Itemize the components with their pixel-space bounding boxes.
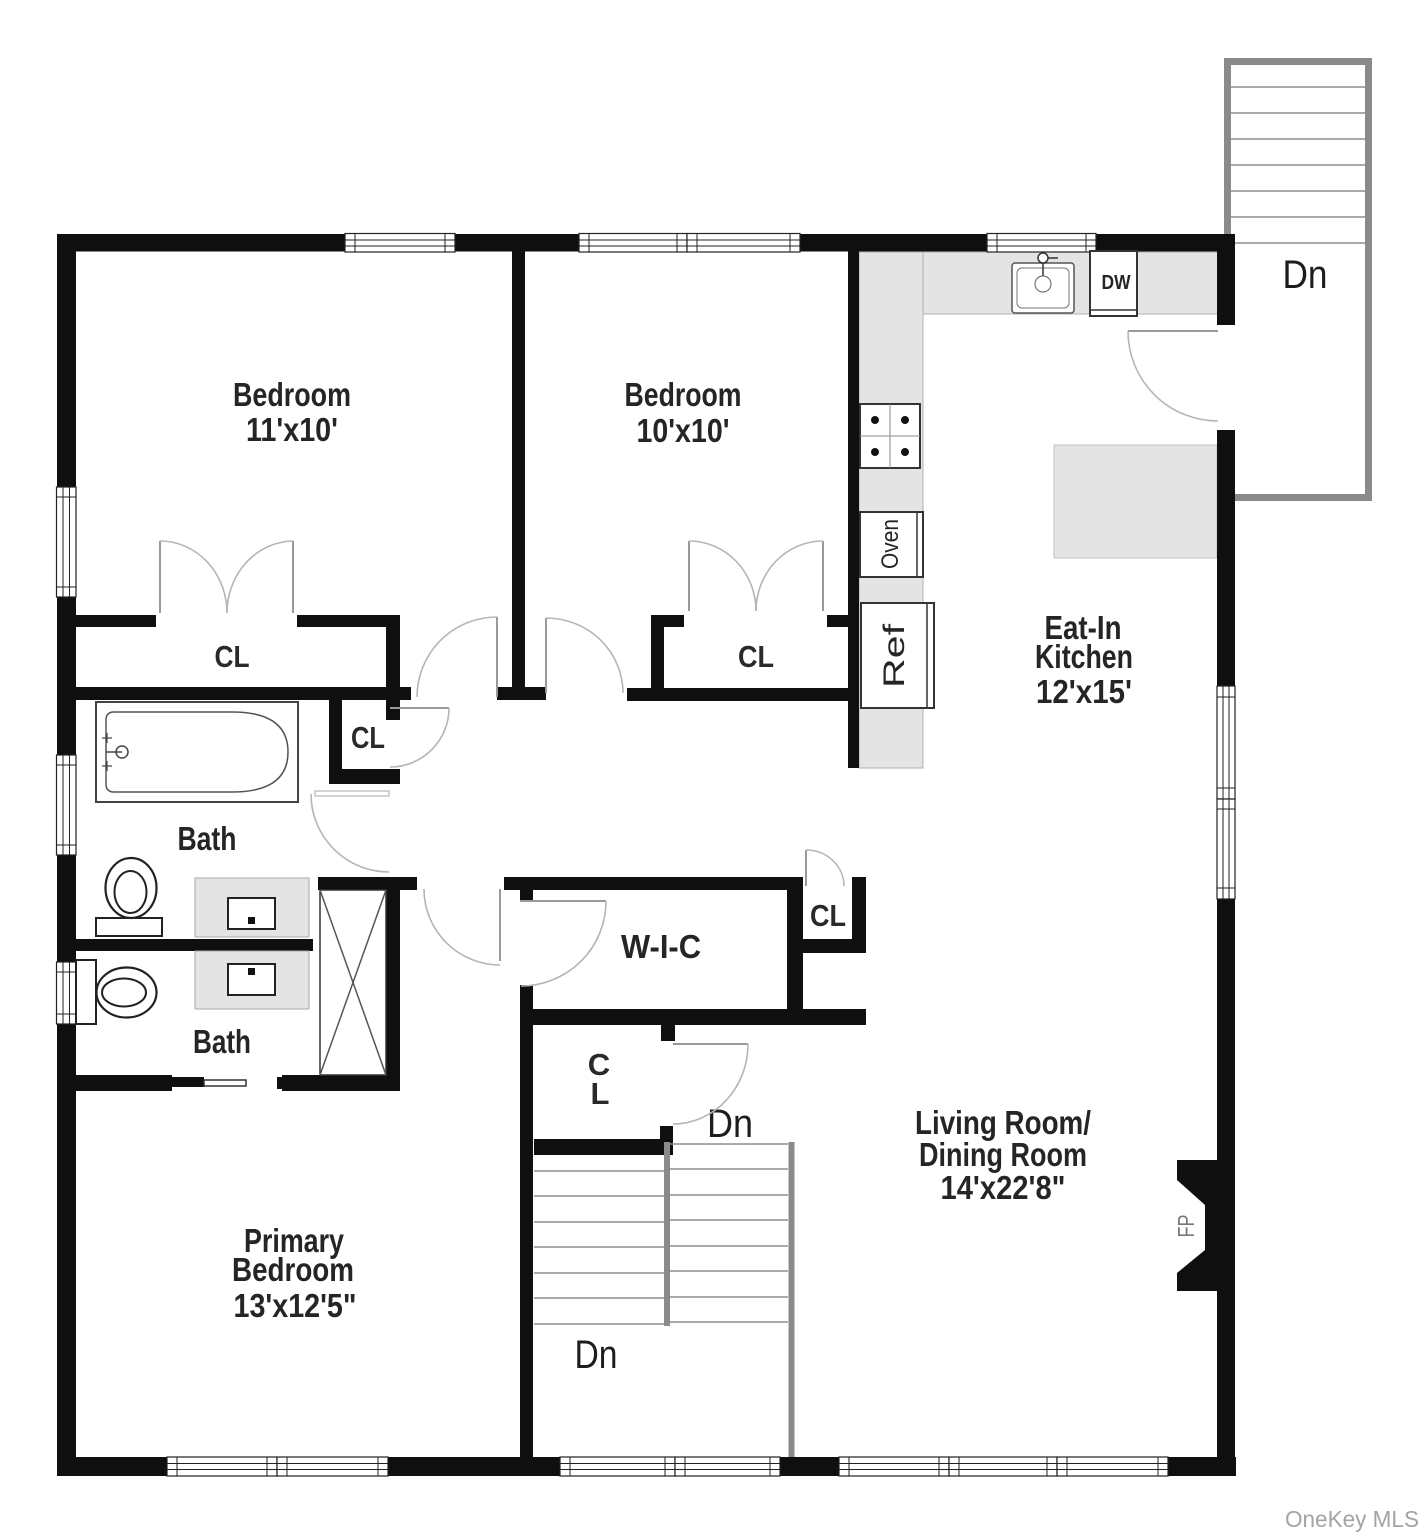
svg-text:CL: CL <box>810 898 846 933</box>
svg-text:13'x12'5": 13'x12'5" <box>234 1287 357 1324</box>
svg-text:Dn: Dn <box>707 1102 753 1146</box>
svg-text:10'x10': 10'x10' <box>637 412 730 449</box>
svg-text:CL: CL <box>738 639 774 674</box>
svg-text:Ref: Ref <box>878 623 911 688</box>
svg-text:W-I-C: W-I-C <box>621 928 701 965</box>
svg-text:OneKey MLS: OneKey MLS <box>1285 1506 1419 1532</box>
svg-text:Bath: Bath <box>193 1023 251 1060</box>
svg-text:Bedroom: Bedroom <box>232 1251 354 1288</box>
svg-text:Dn: Dn <box>1283 253 1328 297</box>
svg-text:Bedroom: Bedroom <box>625 376 742 413</box>
svg-text:CL: CL <box>215 639 250 674</box>
svg-text:14'x22'8": 14'x22'8" <box>941 1169 1066 1206</box>
svg-text:Bath: Bath <box>178 820 237 857</box>
svg-text:Oven: Oven <box>877 519 904 569</box>
svg-text:12'x15': 12'x15' <box>1036 673 1132 710</box>
svg-text:11'x10': 11'x10' <box>246 411 338 448</box>
svg-text:DW: DW <box>1102 272 1131 294</box>
svg-text:Dn: Dn <box>575 1333 618 1377</box>
svg-text:Kitchen: Kitchen <box>1035 638 1133 675</box>
svg-text:Dining Room: Dining Room <box>919 1136 1087 1173</box>
svg-text:Bedroom: Bedroom <box>233 376 351 413</box>
svg-text:L: L <box>591 1076 610 1111</box>
svg-text:FP: FP <box>1173 1215 1199 1238</box>
svg-text:CL: CL <box>351 720 385 755</box>
